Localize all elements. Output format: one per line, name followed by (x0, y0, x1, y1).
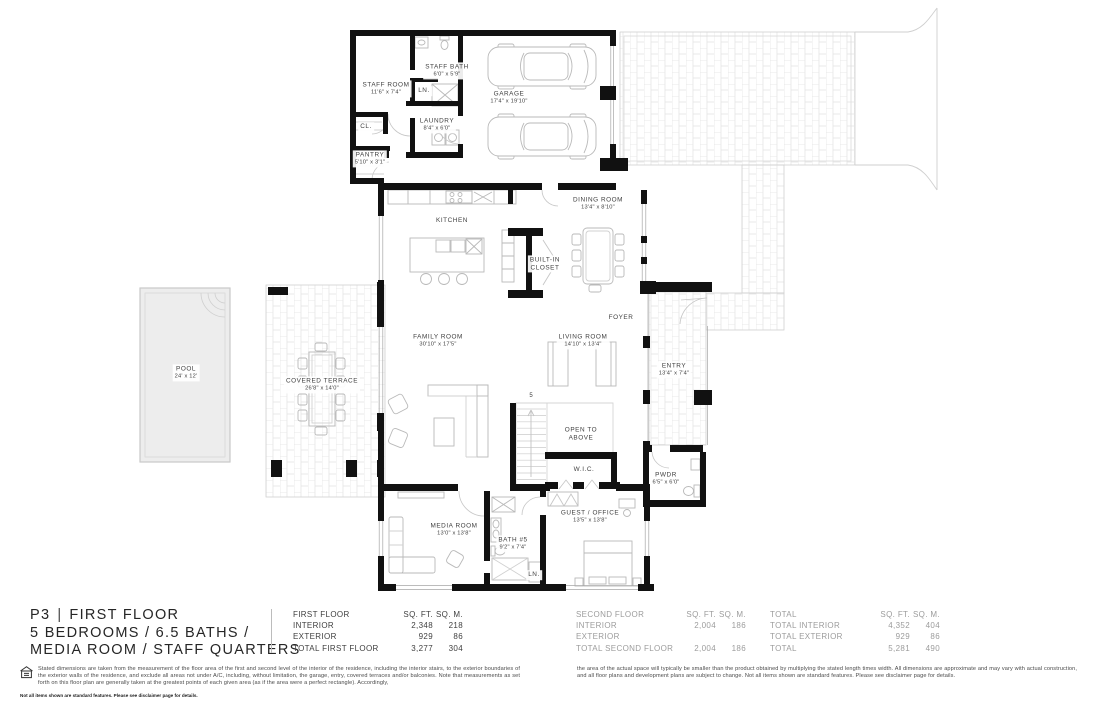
room-label-cl: CL. (358, 122, 374, 132)
room-label-wic: W.I.C. (572, 465, 597, 475)
garage-door-2 (611, 100, 614, 144)
table-header-row: FIRST FLOORSQ. FT.SQ. M. (293, 609, 463, 620)
table-header-row: SECOND FLOORSQ. FT.SQ. M. (576, 609, 746, 620)
page-number: P3 (30, 607, 50, 623)
table-row: EXTERIOR (576, 631, 746, 642)
built-in-closet-wall (508, 228, 543, 236)
room-label-laundry: LAUNDRY8'4" x 6'0" (418, 116, 456, 133)
table-row: EXTERIOR92986 (293, 631, 463, 642)
floor-plan-drawing (0, 0, 1099, 600)
family-room-furniture (387, 385, 488, 457)
pwdr-fixtures (684, 459, 701, 497)
title-line-2: 5 BEDROOMS / 6.5 BATHS / (30, 625, 301, 643)
first-floor-table: FIRST FLOORSQ. FT.SQ. M. INTERIOR2,34821… (293, 609, 463, 654)
table-row: TOTAL SECOND FLOOR2,004186 (576, 643, 746, 654)
room-label-bath-5: BATH #59'2" x 7'4" (496, 535, 529, 552)
room-label-pantry: PANTRY5'10" x 3'1" (353, 150, 387, 167)
room-label-garage: GARAGE17'4" x 19'10" (488, 89, 529, 106)
total-table: TOTALSQ. FT.SQ. M. TOTAL INTERIOR4,35240… (770, 609, 940, 654)
equal-housing-icon (20, 666, 33, 679)
room-label-media-room: MEDIA ROOM13'0" x 13'8" (428, 521, 479, 538)
footer: P3|FIRST FLOOR 5 BEDROOMS / 6.5 BATHS / … (0, 600, 1099, 714)
title-divider (271, 609, 272, 653)
room-label-family-room: FAMILY ROOM30'10" x 17'5" (411, 332, 465, 349)
title-line-3: MEDIA ROOM / STAFF QUARTERS (30, 642, 301, 660)
garage-car-1 (488, 44, 596, 89)
disclaimer-right: the area of the actual space will typica… (577, 666, 1077, 680)
stair-marker: 5 (527, 392, 534, 402)
table-row: INTERIOR2,348218 (293, 620, 463, 631)
pwdr-door (652, 452, 669, 468)
guest-room-furniture (548, 492, 641, 586)
staircase (516, 403, 547, 488)
kitchen-counter (388, 190, 516, 204)
room-label-ln-lower: LN. (526, 570, 542, 580)
driveway-paving (620, 32, 855, 165)
media-door (459, 491, 484, 516)
room-label-living-room: LIVING ROOM14'10" x 13'4" (557, 332, 610, 349)
bath5-door (522, 497, 540, 515)
second-floor-table: SECOND FLOORSQ. FT.SQ. M. INTERIOR2,0041… (576, 609, 746, 654)
room-label-pwdr: PWDR6'5" x 6'0" (650, 470, 681, 487)
garage-hall-door (542, 190, 558, 206)
garage-car-2 (488, 114, 596, 159)
room-label-built-in-closet: BUILT-INCLOSET (528, 255, 562, 272)
kitchen-island (410, 238, 484, 285)
staff-room-door (388, 114, 410, 136)
disclaimer-footnote: Not all items shown are standard feature… (20, 693, 198, 698)
floor-name: FIRST FLOOR (69, 607, 179, 623)
driveway-apron (855, 8, 937, 190)
table-header-row: TOTALSQ. FT.SQ. M. (770, 609, 940, 620)
table-row: TOTAL FIRST FLOOR3,277304 (293, 643, 463, 654)
room-label-staff-room: STAFF ROOM11'6" x 7'4" (361, 80, 412, 97)
table-row: TOTAL INTERIOR4,352404 (770, 620, 940, 631)
porch-paving (706, 293, 784, 330)
page-title: P3|FIRST FLOOR 5 BEDROOMS / 6.5 BATHS / … (30, 607, 301, 660)
title-line-1: P3|FIRST FLOOR (30, 607, 301, 625)
floor-plan-page: STAFF ROOM11'6" x 7'4" STAFF BATH6'0" x … (0, 0, 1099, 714)
room-label-kitchen: KITCHEN (434, 216, 470, 226)
table-row: TOTAL EXTERIOR92986 (770, 631, 940, 642)
room-label-open-to-above: OPEN TOABOVE (563, 425, 599, 442)
title-separator: | (57, 607, 62, 623)
room-label-staff-bath: STAFF BATH6'0" x 5'9" (423, 62, 471, 79)
garage-door-1 (611, 46, 614, 86)
room-label-foyer: FOYER (607, 313, 636, 323)
room-label-entry: ENTRY13'4" x 7'4" (657, 361, 691, 378)
table-row: TOTAL5,281490 (770, 643, 940, 654)
room-label-dining-room: DINING ROOM13'4" x 8'10" (571, 195, 625, 212)
room-label-pool: POOL24' x 12' (173, 364, 200, 381)
disclaimer-left: Stated dimensions are taken from the mea… (38, 666, 520, 688)
room-label-ln-upper: LN. (416, 86, 432, 96)
room-label-guest-office: GUEST / OFFICE13'5" x 13'8" (559, 508, 621, 525)
room-label-covered-terrace: COVERED TERRACE26'8" x 14'0" (284, 376, 360, 393)
table-row: INTERIOR2,004186 (576, 620, 746, 631)
kitchen-tall-cabinets (502, 230, 514, 282)
walkway-paving (742, 165, 784, 293)
dining-table-set (572, 228, 624, 292)
